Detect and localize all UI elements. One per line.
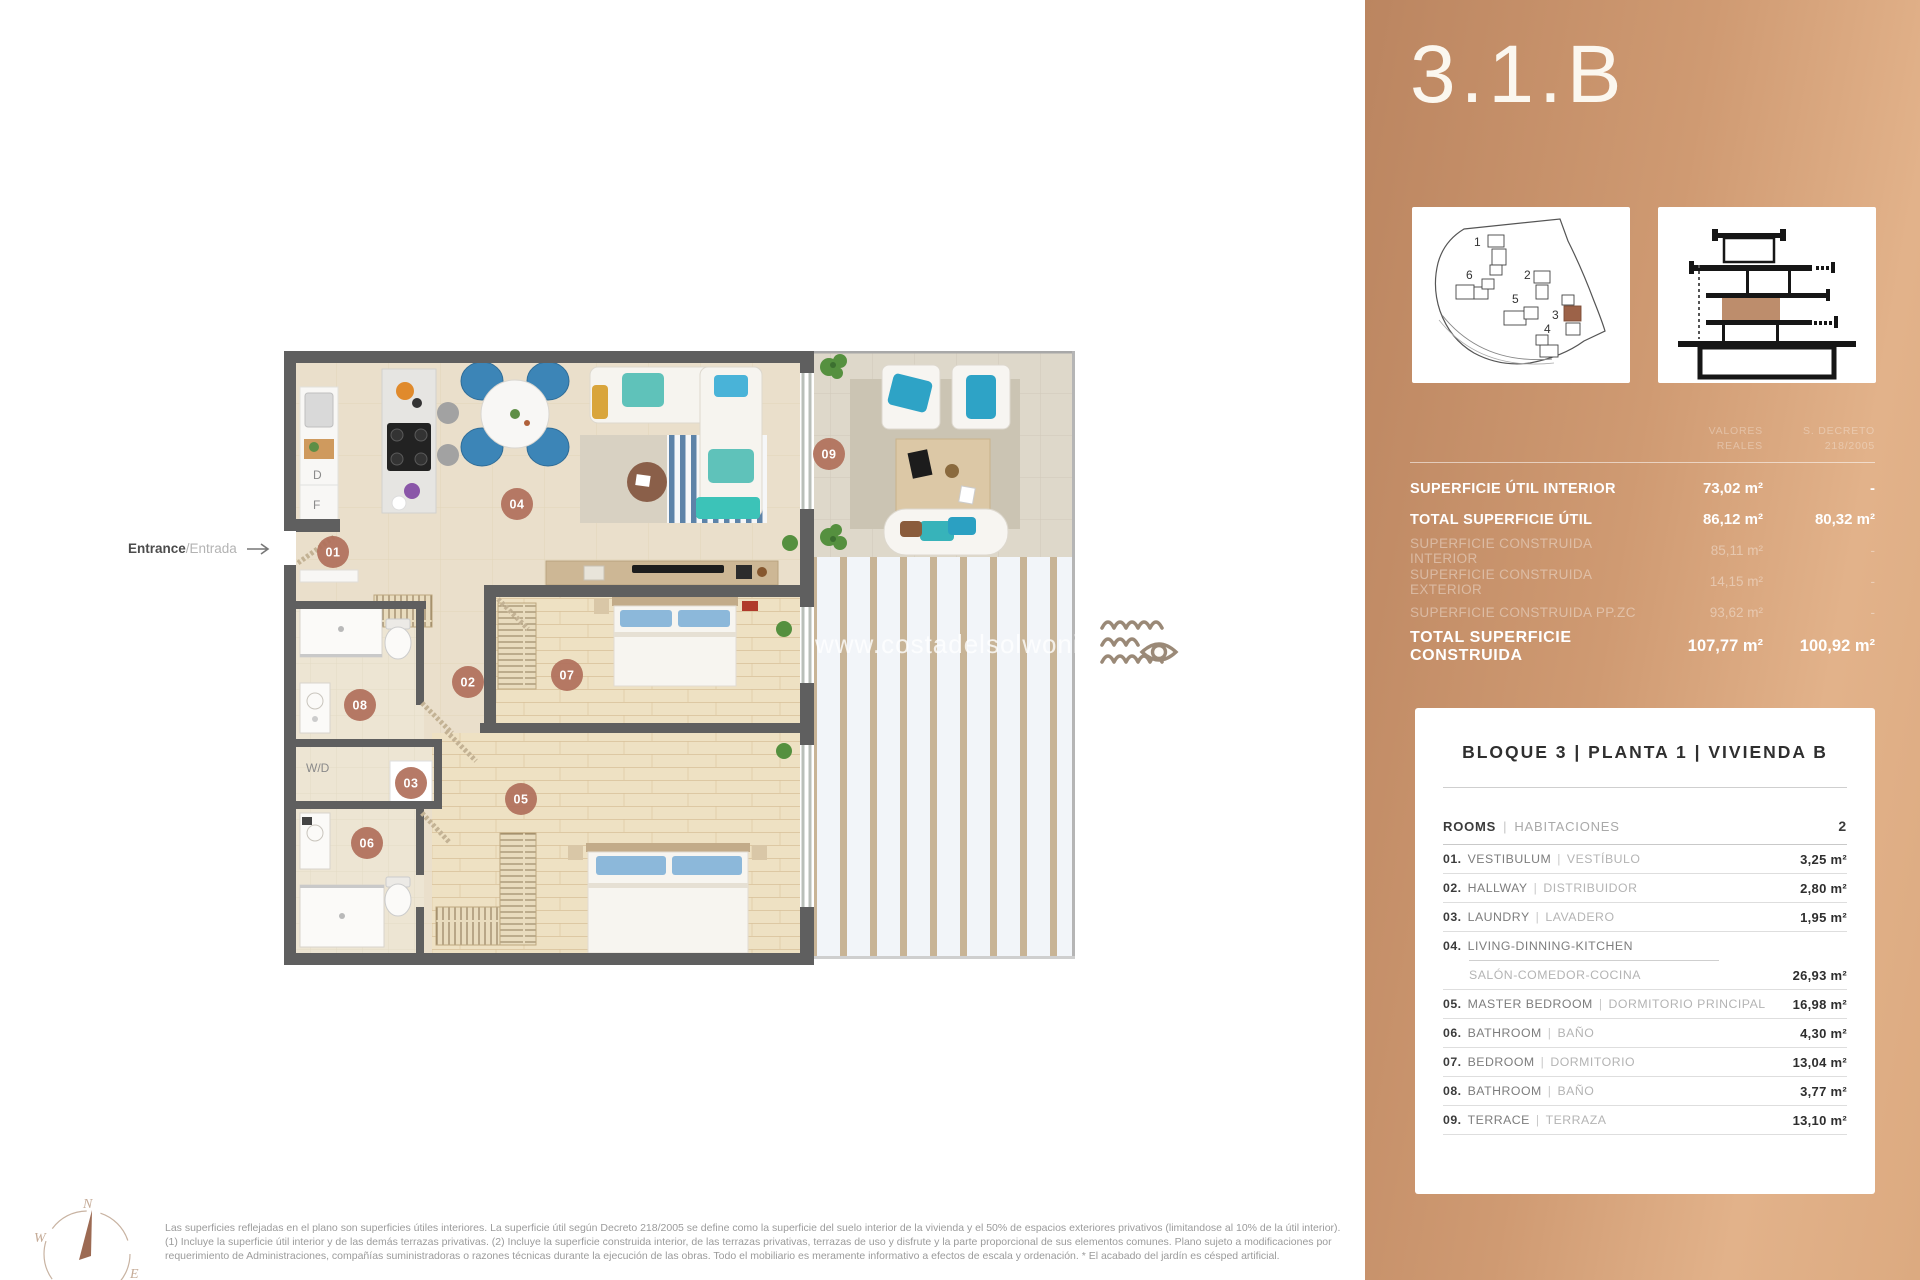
surface-row: SUPERFICIE ÚTIL INTERIOR 73,02 m² - <box>1410 473 1875 504</box>
site-num-6: 6 <box>1466 268 1473 282</box>
site-plan-diagram: 1 2 3 4 5 6 <box>1412 207 1630 383</box>
surface-row: SUPERFICIE CONSTRUIDA PP.ZC 93,62 m² - <box>1410 597 1875 628</box>
arrow-right-icon <box>245 542 271 556</box>
room-row: 01. VESTIBULUM | VESTÍBULO 3,25 m² <box>1443 845 1847 874</box>
surface-rows: SUPERFICIE ÚTIL INTERIOR 73,02 m² - TOTA… <box>1410 473 1875 665</box>
highlighted-floor <box>1722 298 1780 320</box>
tv-console <box>546 561 778 585</box>
room-rows: 01. VESTIBULUM | VESTÍBULO 3,25 m² 02. H… <box>1443 845 1847 1135</box>
room-row: 05. MASTER BEDROOM | DORMITORIO PRINCIPA… <box>1443 990 1847 1019</box>
info-panel: 3.1.B 1 2 3 4 5 6 <box>1365 0 1920 1280</box>
compass-w: W <box>34 1231 47 1246</box>
svg-text:06: 06 <box>360 837 375 851</box>
floor-plan: D F <box>284 351 1075 965</box>
site-num-5: 5 <box>1512 292 1519 306</box>
watermark: www.costadelsolwoningen <box>814 629 1075 659</box>
disclaimer-text: Las superficies reflejadas en el plano s… <box>165 1222 1355 1264</box>
col-valores-reales: VALORESREALES <box>1645 424 1763 453</box>
compass-icon: N W E S <box>30 1190 145 1280</box>
badge-08: 08 <box>344 689 376 721</box>
entrance-label: Entrance/Entrada <box>128 541 271 556</box>
building-section-diagram <box>1658 207 1876 383</box>
svg-text:05: 05 <box>514 793 529 807</box>
compass-n: N <box>82 1197 93 1212</box>
badge-05: 05 <box>505 783 537 815</box>
surface-row: SUPERFICIE CONSTRUIDA EXTERIOR 14,15 m² … <box>1410 566 1875 597</box>
badge-01: 01 <box>317 536 349 568</box>
badge-04: 04 <box>501 488 533 520</box>
row-divider <box>1469 960 1719 961</box>
site-num-1: 1 <box>1474 235 1481 249</box>
room-row: 04. LIVING-DINNING-KITCHEN SALÓN-COMEDOR… <box>1443 932 1847 990</box>
room-row: 06. BATHROOM | BAÑO 4,30 m² <box>1443 1019 1847 1048</box>
svg-text:07: 07 <box>560 669 575 683</box>
unit-card-title: BLOQUE 3 | PLANTA 1 | VIVIENDA B <box>1443 742 1847 763</box>
entrance-label-en: Entrance <box>128 541 186 556</box>
unit-card: BLOQUE 3 | PLANTA 1 | VIVIENDA B ROOMS |… <box>1415 708 1875 1194</box>
section-card <box>1658 207 1876 383</box>
site-num-3: 3 <box>1552 308 1559 322</box>
badge-03: 03 <box>395 767 427 799</box>
svg-text:09: 09 <box>822 448 837 462</box>
unit-title: 3.1.B <box>1410 34 1626 116</box>
col-decreto: S. DECRETO218/2005 <box>1763 424 1875 453</box>
surface-row: TOTAL SUPERFICIE CONSTRUIDA 107,77 m² 10… <box>1410 628 1875 665</box>
room-row: 03. LAUNDRY | LAVADERO 1,95 m² <box>1443 903 1847 932</box>
room-row: 07. BEDROOM | DORMITORIO 13,04 m² <box>1443 1048 1847 1077</box>
glass-doors <box>803 373 810 907</box>
highlighted-building-3 <box>1564 306 1581 321</box>
rooms-header: ROOMS | HABITACIONES 2 <box>1443 818 1847 845</box>
surface-row: SUPERFICIE CONSTRUIDA INTERIOR 85,11 m² … <box>1410 535 1875 566</box>
sea-view-icon <box>1098 615 1182 673</box>
room-row: 02. HALLWAY | DISTRIBUIDOR 2,80 m² <box>1443 874 1847 903</box>
room-row: 08. BATHROOM | BAÑO 3,77 m² <box>1443 1077 1847 1106</box>
badge-06: 06 <box>351 827 383 859</box>
compass-e: E <box>129 1267 139 1280</box>
rooms-label-es: HABITACIONES <box>1514 819 1619 834</box>
room-row: 09. TERRACE | TERRAZA 13,10 m² <box>1443 1106 1847 1135</box>
badge-07: 07 <box>551 659 583 691</box>
svg-text:04: 04 <box>510 498 525 512</box>
fridge-label: F <box>313 498 320 512</box>
site-num-2: 2 <box>1524 268 1531 282</box>
surface-table-header: VALORESREALES S. DECRETO218/2005 <box>1410 424 1875 462</box>
surface-table: VALORESREALES S. DECRETO218/2005 SUPERFI… <box>1410 424 1875 665</box>
svg-text:01: 01 <box>326 546 341 560</box>
site-num-4: 4 <box>1544 322 1551 336</box>
svg-text:02: 02 <box>461 676 476 690</box>
rooms-count: 2 <box>1838 818 1847 834</box>
badge-02: 02 <box>452 666 484 698</box>
washer-dryer-label: W/D <box>306 761 330 775</box>
entrance-label-es: /Entrada <box>186 541 237 556</box>
surface-row: TOTAL SUPERFICIE ÚTIL 86,12 m² 80,32 m² <box>1410 504 1875 535</box>
dishwasher-label: D <box>313 468 322 482</box>
site-plan-card: 1 2 3 4 5 6 <box>1412 207 1630 383</box>
badge-09: 09 <box>813 438 845 470</box>
rooms-label: ROOMS <box>1443 819 1496 834</box>
svg-text:08: 08 <box>353 699 368 713</box>
svg-text:03: 03 <box>404 777 419 791</box>
